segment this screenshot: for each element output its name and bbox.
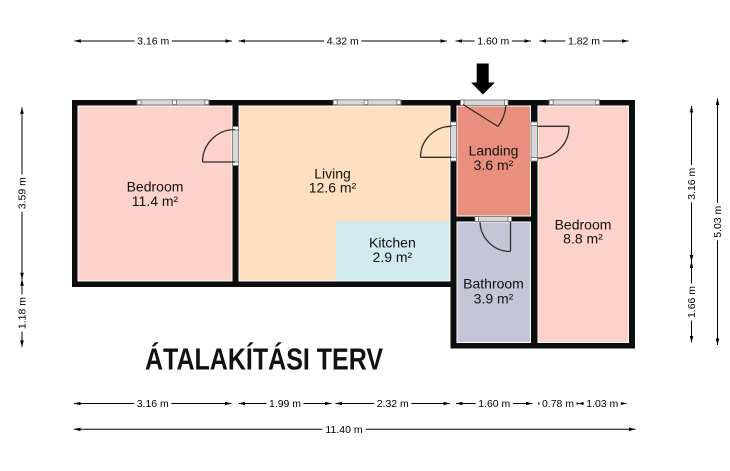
- svg-text:3.16 m: 3.16 m: [137, 398, 169, 410]
- svg-text:ÁTALAKÍTÁSI TERV: ÁTALAKÍTÁSI TERV: [145, 342, 383, 377]
- svg-text:3.6 m²: 3.6 m²: [474, 157, 514, 173]
- svg-text:3.16 m: 3.16 m: [686, 167, 698, 199]
- svg-text:11.4 m²: 11.4 m²: [132, 193, 179, 209]
- svg-text:12.6 m²: 12.6 m²: [309, 180, 357, 196]
- svg-text:1.82 m: 1.82 m: [568, 36, 600, 48]
- svg-text:1.99 m: 1.99 m: [269, 398, 301, 410]
- svg-text:Kitchen: Kitchen: [369, 234, 416, 250]
- svg-text:1.03 m: 1.03 m: [586, 398, 618, 410]
- svg-text:8.8 m²: 8.8 m²: [563, 231, 603, 247]
- svg-text:Bathroom: Bathroom: [463, 276, 524, 292]
- svg-text:2.9 m²: 2.9 m²: [373, 249, 413, 265]
- svg-text:1.18 m: 1.18 m: [17, 297, 29, 329]
- svg-text:4.32 m: 4.32 m: [327, 36, 359, 48]
- svg-text:1.60 m: 1.60 m: [478, 398, 510, 410]
- svg-text:2.32 m: 2.32 m: [377, 398, 409, 410]
- svg-text:0.78 m: 0.78 m: [542, 398, 574, 410]
- svg-text:5.03 m: 5.03 m: [712, 205, 724, 237]
- svg-text:1.66 m: 1.66 m: [686, 286, 698, 318]
- svg-text:3.59 m: 3.59 m: [17, 177, 29, 209]
- svg-text:3.9 m²: 3.9 m²: [474, 291, 514, 307]
- svg-text:1.60 m: 1.60 m: [477, 36, 509, 48]
- svg-text:11.40 m: 11.40 m: [325, 424, 362, 436]
- svg-text:3.16 m: 3.16 m: [137, 36, 169, 48]
